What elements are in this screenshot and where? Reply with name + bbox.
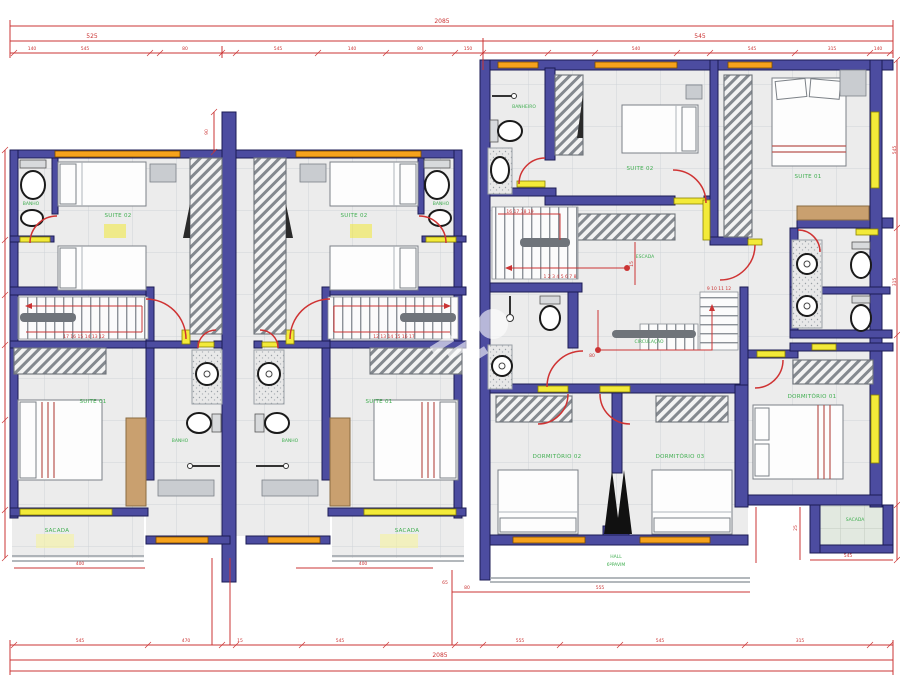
dim-label: 545 [748, 46, 757, 52]
side-table [150, 164, 176, 182]
double-bed-icon [772, 78, 846, 166]
dim-label: 315 [828, 46, 837, 52]
dim-label: 140 [874, 46, 883, 52]
room-label: SUITE 01 [79, 399, 106, 405]
dim-label: 65 [442, 580, 448, 586]
rug [380, 534, 418, 548]
dresser-icon [797, 206, 869, 220]
dim-label: 545 [274, 46, 283, 52]
bed-icon [330, 246, 418, 290]
side-table [686, 85, 702, 99]
dim-label: 555 [596, 585, 605, 591]
rug [350, 224, 372, 238]
window-sill [840, 70, 866, 96]
left-duplex-balconies [12, 556, 464, 561]
room-label: SACADA [395, 528, 420, 534]
bed-icon [58, 162, 146, 206]
round-sink-icon [196, 363, 218, 385]
dim-label: 545 [892, 146, 898, 155]
vanity [262, 480, 318, 496]
wardrobe-icon [575, 214, 675, 240]
floorplan-canvas: 17 16 15 14 13 12 12 13 14 15 16 17 [0, 0, 900, 675]
round-sink-icon [797, 296, 817, 316]
wardrobe-icon [793, 360, 873, 384]
dim-label: 15 [629, 261, 635, 267]
wardrobe-icon [656, 396, 728, 422]
room-label: BANHO [172, 438, 189, 444]
dim-label: 80 [417, 46, 423, 52]
wardrobe-icon [555, 75, 583, 155]
room-label: 6ºPAVIM [607, 562, 626, 568]
toilet-icon [490, 120, 522, 142]
room-label: ESCADA [636, 254, 655, 260]
round-sink-icon [258, 363, 280, 385]
room-label: HALL [610, 554, 622, 560]
dim-label: 545 [336, 638, 345, 644]
sink-icon [491, 157, 509, 183]
dim-label: 80 [464, 585, 470, 591]
bed-icon [622, 105, 698, 153]
stair-numbers: 12 13 14 15 16 17 [373, 334, 415, 340]
rug [104, 224, 126, 238]
toilet-icon [851, 296, 871, 331]
room-label: CIRCULAÇÃO [634, 338, 664, 345]
wardrobe-icon [496, 396, 572, 422]
dim-label: 545 [694, 33, 706, 40]
room-label: DORMITÓRIO 03 [656, 453, 705, 460]
dim-label: 80 [182, 46, 188, 52]
dim-label: 545 [656, 638, 665, 644]
sink-icon [429, 210, 451, 226]
room-label: SUITE 01 [365, 399, 392, 405]
dim-label: 140 [348, 46, 357, 52]
dim-label: 25 [793, 525, 799, 531]
dim-label: 315 [796, 638, 805, 644]
side-table [300, 164, 326, 182]
dim-label: 15 [237, 638, 243, 644]
terrace-edge [490, 578, 750, 582]
dim-label: 80 [589, 353, 595, 359]
toilet-icon [540, 296, 560, 330]
dim-label: 90 [204, 129, 210, 135]
toilet-icon [20, 160, 46, 199]
room-label: SACADA [45, 528, 70, 534]
double-bed-icon [18, 400, 102, 480]
stair-numbers: 9 10 11 12 [707, 286, 731, 292]
dim-label: 400 [76, 561, 85, 567]
dim-label: 525 [86, 33, 98, 40]
dim-label: 2085 [434, 18, 449, 25]
wardrobe-icon [190, 158, 222, 334]
room-label: SUITE 01 [794, 174, 821, 180]
dim-label: 540 [632, 46, 641, 52]
closet-icon [330, 418, 350, 506]
room-label: BANHO [23, 201, 40, 207]
room-label: BANHO [282, 438, 299, 444]
rug [36, 534, 74, 548]
double-bed-icon [374, 400, 458, 480]
room-label: SUITE 02 [340, 213, 367, 219]
dim-label: 150 [464, 46, 473, 52]
bed-icon [58, 246, 146, 290]
stair-numbers: 1 2 3 4 5 6 7 8 [544, 274, 577, 280]
room-label: BANHO [433, 201, 450, 207]
wardrobe-icon [14, 348, 106, 374]
bed-icon [330, 162, 418, 206]
room-label: SUITE 02 [626, 166, 653, 172]
dim-label: 315 [892, 278, 898, 287]
closet-icon [126, 418, 146, 506]
sink-icon [21, 210, 43, 226]
stair-numbers: 17 16 15 14 13 12 [63, 334, 105, 340]
toilet-icon [255, 413, 289, 433]
room-label: SUITE 02 [104, 213, 131, 219]
dim-label: 555 [516, 638, 525, 644]
dim-label: 545 [844, 553, 853, 559]
round-sink-icon [797, 254, 817, 274]
wardrobe-icon [254, 158, 286, 334]
dim-label: 140 [28, 46, 37, 52]
stair-numbers: 16 17 18 19 [506, 209, 533, 215]
wardrobe-icon [724, 75, 752, 237]
dim-label: 400 [359, 561, 368, 567]
floorplan-svg: 17 16 15 14 13 12 12 13 14 15 16 17 [0, 0, 900, 675]
toilet-icon [424, 160, 450, 199]
party-wall [222, 112, 236, 582]
dim-label: 545 [81, 46, 90, 52]
round-sink-icon [492, 356, 512, 376]
wardrobe-icon [370, 348, 462, 374]
dim-label: 470 [182, 638, 191, 644]
double-bed-icon [753, 405, 843, 479]
room-label: DORMITÓRIO 02 [533, 453, 582, 460]
vanity [158, 480, 214, 496]
bed-icon [498, 470, 578, 534]
room-label: DORMITÓRIO 01 [788, 393, 837, 400]
toilet-icon [187, 413, 221, 433]
dim-label: 2085 [432, 652, 447, 659]
toilet-icon [851, 242, 871, 278]
room-label: SACADA [846, 517, 866, 523]
bed-icon [652, 470, 732, 534]
dim-label: 545 [76, 638, 85, 644]
room-label: BANHEIRO [512, 104, 536, 110]
